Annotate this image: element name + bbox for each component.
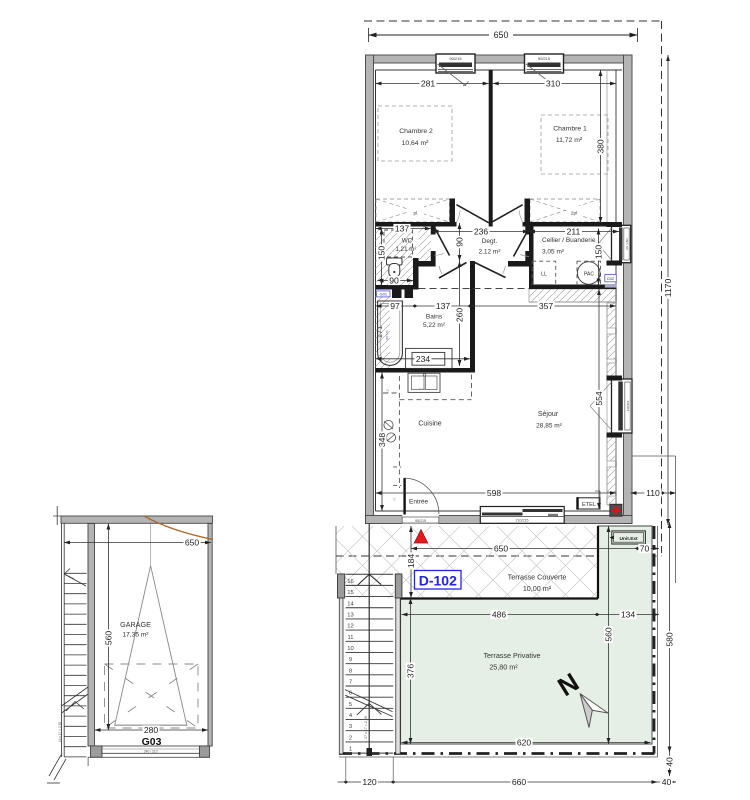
svg-text:357: 357 — [539, 301, 554, 311]
svg-text:pl.: pl. — [413, 211, 418, 217]
svg-text:WC: WC — [402, 238, 413, 245]
svg-text:10,64 m²: 10,64 m² — [402, 140, 430, 147]
svg-text:Terrasse Privative: Terrasse Privative — [483, 651, 540, 660]
svg-text:28,85 m²: 28,85 m² — [536, 423, 562, 430]
svg-text:40: 40 — [665, 757, 675, 767]
svg-text:Alt. 1,8m: Alt. 1,8m — [625, 238, 629, 250]
svg-text:137: 137 — [395, 224, 410, 234]
svg-text:Chambre 1: Chambre 1 — [553, 126, 587, 133]
svg-text:234: 234 — [416, 354, 431, 364]
svg-text:376: 376 — [406, 664, 416, 679]
svg-text:554: 554 — [594, 391, 604, 406]
svg-text:Entrée: Entrée — [409, 499, 429, 506]
svg-text:8: 8 — [349, 668, 352, 674]
svg-text:95/215: 95/215 — [415, 519, 426, 523]
svg-text:486: 486 — [492, 610, 507, 620]
svg-text:G01: G01 — [380, 292, 388, 297]
svg-text:16: 16 — [347, 579, 353, 585]
svg-text:17 x 17 = 2,89: 17 x 17 = 2,89 — [364, 716, 368, 739]
svg-text:110: 110 — [646, 488, 660, 498]
svg-text:G03: G03 — [142, 736, 162, 748]
svg-text:LL: LL — [541, 272, 547, 278]
svg-text:580: 580 — [665, 632, 675, 647]
svg-text:260: 260 — [455, 308, 465, 323]
svg-text:10,00 m²: 10,00 m² — [523, 584, 552, 593]
svg-text:5,22 m²: 5,22 m² — [423, 322, 446, 329]
svg-text:9: 9 — [349, 657, 352, 663]
svg-text:348: 348 — [377, 433, 387, 448]
svg-text:10: 10 — [347, 646, 353, 652]
svg-text:40: 40 — [662, 777, 672, 787]
svg-text:120: 120 — [362, 777, 377, 787]
svg-text:7: 7 — [349, 680, 352, 686]
svg-text:660: 660 — [512, 777, 527, 787]
svg-text:236: 236 — [474, 227, 489, 237]
svg-text:97: 97 — [390, 301, 400, 311]
svg-text:281: 281 — [421, 79, 436, 89]
svg-text:2: 2 — [349, 735, 352, 741]
svg-text:90: 90 — [389, 276, 399, 286]
svg-text:120/115: 120/115 — [626, 400, 630, 411]
svg-text:184: 184 — [406, 554, 416, 569]
svg-text:3,05 m²: 3,05 m² — [542, 249, 565, 256]
svg-text:620: 620 — [517, 738, 532, 748]
svg-text:Cuisine: Cuisine — [418, 421, 441, 428]
svg-text:650: 650 — [494, 30, 509, 40]
svg-text:Bains: Bains — [426, 313, 443, 320]
svg-text:280: 280 — [144, 725, 159, 735]
svg-text:11,72 m²: 11,72 m² — [556, 137, 583, 144]
svg-text:650: 650 — [494, 544, 509, 554]
svg-text:1: 1 — [349, 747, 352, 753]
svg-text:3: 3 — [349, 724, 352, 730]
svg-text:Degt.: Degt. — [482, 238, 498, 245]
svg-text:240 / 210: 240 / 210 — [144, 750, 158, 754]
svg-text:12: 12 — [347, 624, 353, 630]
svg-text:D-102: D-102 — [419, 573, 457, 589]
svg-text:11: 11 — [347, 635, 353, 641]
svg-text:380: 380 — [596, 139, 606, 154]
svg-text:ETEL: ETEL — [582, 502, 596, 508]
svg-text:14: 14 — [347, 601, 354, 607]
svg-text:70: 70 — [640, 544, 650, 554]
svg-text:560: 560 — [104, 631, 114, 646]
svg-text:150: 150 — [594, 245, 604, 260]
svg-text:2pl: 2pl — [571, 211, 577, 217]
svg-text:14 x 17 = 2,89: 14 x 17 = 2,89 — [58, 721, 62, 742]
svg-text:211: 211 — [567, 227, 581, 237]
svg-text:Evier: Evier — [419, 387, 426, 391]
svg-text:25,80 m²: 25,80 m² — [489, 663, 518, 672]
svg-text:Chambre 2: Chambre 2 — [399, 128, 433, 135]
svg-text:BD 170: BD 170 — [385, 330, 389, 340]
svg-text:15: 15 — [347, 590, 353, 596]
svg-text:13: 13 — [347, 612, 353, 618]
svg-text:90: 90 — [455, 237, 465, 247]
svg-text:134: 134 — [621, 610, 636, 620]
svg-text:Unit.Ext: Unit.Ext — [620, 536, 639, 542]
svg-text:90/215: 90/215 — [538, 56, 551, 61]
svg-text:650: 650 — [185, 538, 200, 548]
svg-text:PAC: PAC — [584, 272, 595, 278]
svg-text:Cellier / Buanderie: Cellier / Buanderie — [542, 237, 596, 244]
svg-text:210/215: 210/215 — [516, 518, 529, 522]
svg-text:598: 598 — [487, 488, 502, 498]
svg-text:150: 150 — [377, 246, 387, 261]
svg-text:90/215: 90/215 — [449, 56, 462, 61]
svg-text:Terrasse Couverte: Terrasse Couverte — [508, 573, 567, 582]
svg-text:171: 171 — [375, 326, 384, 339]
svg-text:310: 310 — [546, 79, 561, 89]
svg-text:2,12 m²: 2,12 m² — [478, 249, 501, 256]
svg-text:560: 560 — [604, 627, 614, 642]
svg-text:1170: 1170 — [663, 279, 673, 298]
svg-text:137: 137 — [436, 301, 451, 311]
svg-text:Séjour: Séjour — [538, 411, 559, 418]
svg-text:1,21 m²: 1,21 m² — [396, 246, 417, 253]
svg-text:17,35 m²: 17,35 m² — [122, 632, 149, 639]
svg-text:G02: G02 — [607, 276, 615, 281]
svg-text:5: 5 — [349, 702, 352, 708]
svg-text:GARAGE: GARAGE — [120, 620, 151, 629]
